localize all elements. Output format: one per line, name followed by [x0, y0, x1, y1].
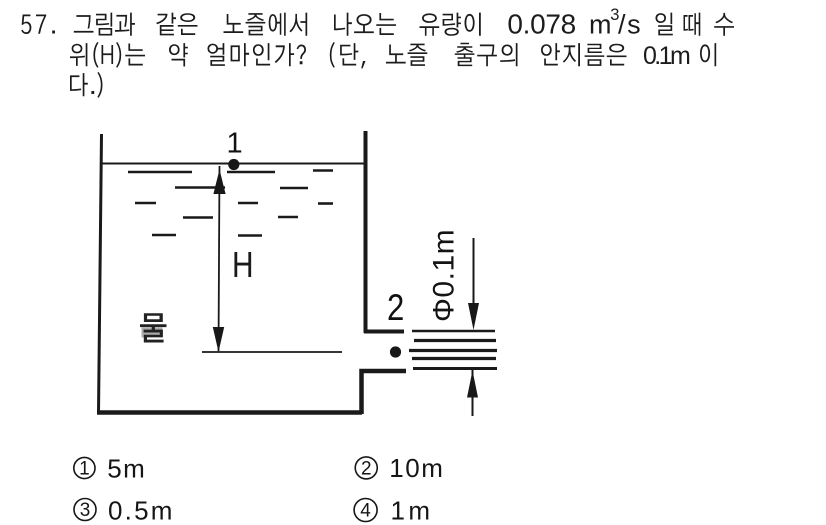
svg-text:3: 3 — [80, 500, 91, 521]
svg-text:1m: 1m — [391, 496, 434, 525]
svg-text:1: 1 — [79, 459, 90, 480]
svg-text:0.1m: 0.1m — [643, 42, 690, 70]
svg-text:0.078: 0.078 — [507, 9, 576, 40]
svg-text:Φ0.1m: Φ0.1m — [428, 229, 461, 322]
svg-text:0.5m: 0.5m — [108, 496, 175, 525]
svg-text:H: H — [232, 245, 254, 285]
svg-text:10m: 10m — [389, 453, 444, 483]
svg-text:/s: /s — [618, 10, 642, 40]
svg-text:2: 2 — [387, 288, 404, 329]
svg-text:5m: 5m — [107, 454, 146, 484]
svg-text:2: 2 — [361, 459, 372, 480]
svg-text:4: 4 — [360, 501, 371, 522]
svg-text:m: m — [589, 10, 612, 40]
svg-text:1: 1 — [227, 128, 243, 160]
